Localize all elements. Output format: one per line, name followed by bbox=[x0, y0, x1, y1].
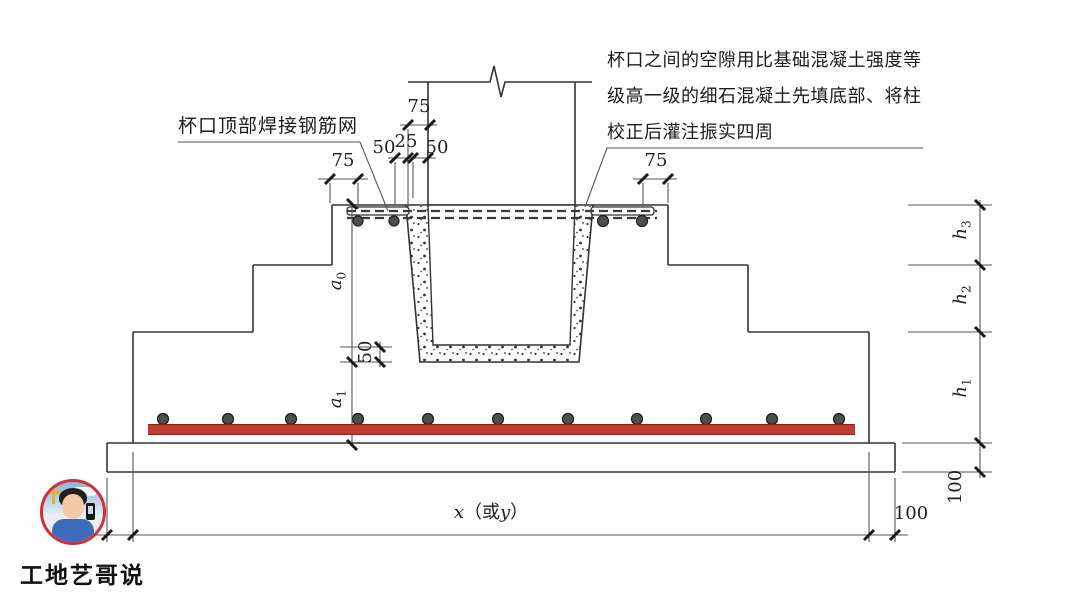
bottom-rebar-band bbox=[148, 424, 855, 435]
note-line-1: 杯口之间的空隙用比基础混凝土强度等 bbox=[607, 42, 922, 78]
dim-100-bottom: 100 bbox=[894, 505, 928, 523]
foundation-detail-drawing: 杯口顶部焊接钢筋网 杯口之间的空隙用比基础混凝土强度等 级高一级的细石混凝土先填… bbox=[0, 0, 1080, 608]
note-line-3: 校正后灌注振实四周 bbox=[607, 114, 922, 150]
dim-50-right: 50 bbox=[426, 139, 449, 157]
dim-h3: h3 bbox=[952, 220, 970, 239]
cup-top-mesh-label: 杯口顶部焊接钢筋网 bbox=[178, 111, 358, 138]
leader-lines bbox=[178, 142, 923, 211]
cup-socket bbox=[406, 205, 593, 362]
dim-75-column: 75 bbox=[408, 98, 431, 116]
rebar-dots bbox=[158, 414, 845, 425]
avatar-shirt bbox=[52, 519, 94, 542]
dim-a1: a1 bbox=[327, 390, 345, 408]
dim-75-top-left: 75 bbox=[332, 152, 355, 170]
dim-h2: h2 bbox=[952, 285, 970, 304]
dim-75-top-right: 75 bbox=[645, 152, 668, 170]
dim-25: 25 bbox=[395, 133, 418, 151]
dim-a0: a0 bbox=[327, 272, 345, 290]
dim-50-left: 50 bbox=[373, 139, 396, 157]
avatar-face bbox=[62, 494, 84, 519]
dim-x-or-y: x（或y） bbox=[454, 504, 528, 522]
dim-h1: h1 bbox=[952, 378, 970, 397]
cup-gap-note: 杯口之间的空隙用比基础混凝土强度等 级高一级的细石混凝土先填底部、将柱 校正后灌… bbox=[607, 42, 922, 150]
phone-icon bbox=[86, 503, 95, 520]
watermark-name: 工地艺哥说 bbox=[20, 556, 145, 590]
watermark-avatar bbox=[40, 479, 106, 545]
column-break-line bbox=[408, 66, 592, 97]
dim-100-bedding: 100 bbox=[947, 470, 965, 504]
dim-50-bottom-fill: 50 bbox=[357, 341, 375, 364]
note-line-2: 级高一级的细石混凝土先填底部、将柱 bbox=[607, 78, 922, 114]
